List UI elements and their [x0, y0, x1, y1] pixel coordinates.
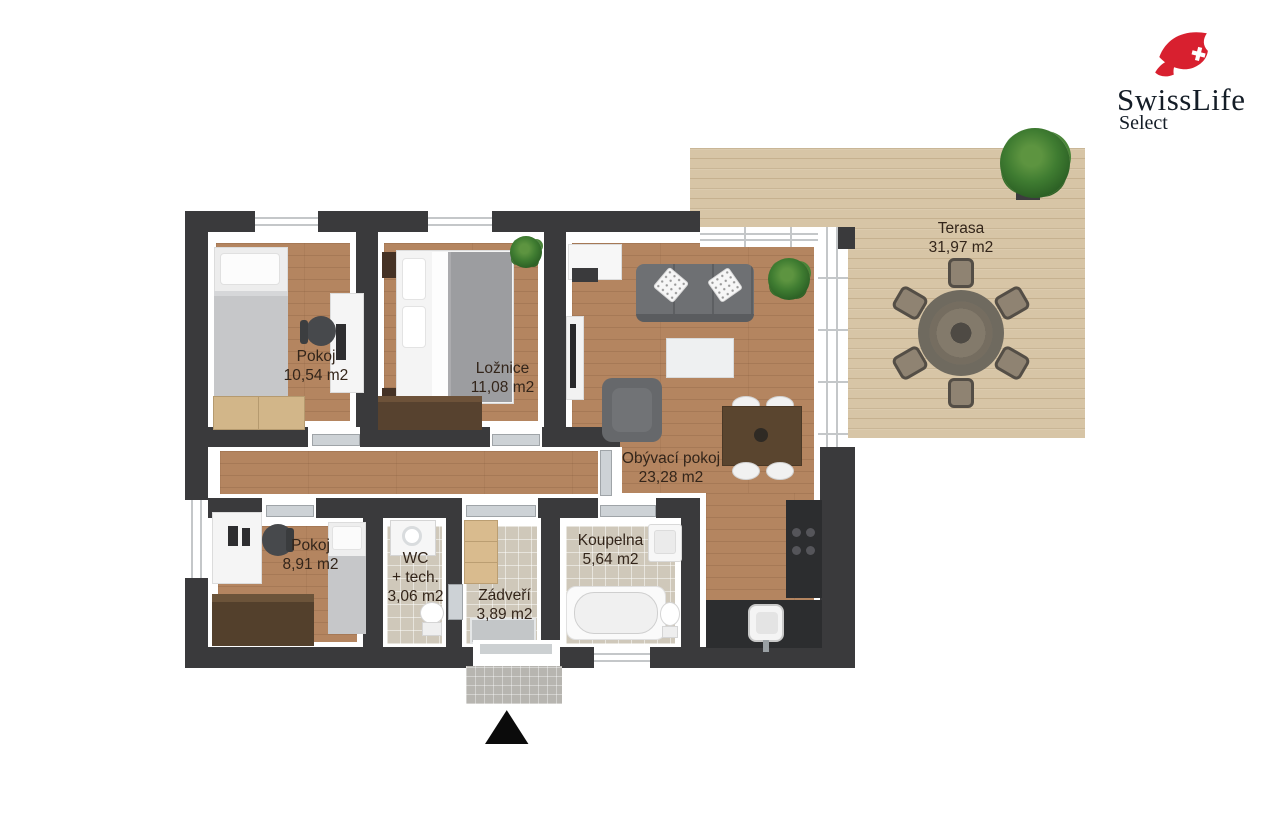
sideboard	[213, 396, 305, 430]
washer-door	[402, 526, 422, 546]
wall-segment	[820, 447, 855, 668]
bed-pillow	[220, 253, 280, 285]
floorplan-canvas: ▲ Pokoj 10,54 m2 Ložnice 11,08 m2 Obývac…	[0, 0, 1280, 835]
window	[255, 211, 318, 232]
wall-segment	[560, 647, 594, 668]
room-label-pokoj1: Pokoj 10,54 m2	[246, 348, 386, 386]
door-leaf	[492, 434, 540, 446]
entrance-direction-icon: ▲	[470, 700, 543, 749]
wall-segment	[492, 211, 700, 232]
room-name: Pokoj	[246, 348, 386, 367]
bed-pillow	[402, 306, 426, 348]
brand-subname: Select	[1119, 112, 1168, 135]
room-name-2: + tech.	[373, 569, 458, 588]
room-area: 3,89 m2	[438, 606, 571, 625]
wall-segment	[316, 498, 462, 518]
sink-basin	[756, 612, 778, 634]
room-area: 8,91 m2	[238, 556, 383, 575]
bed-pillow	[402, 258, 426, 300]
room-area: 10,54 m2	[246, 367, 386, 386]
monitor	[228, 526, 238, 546]
room-name: Zádveří	[438, 587, 571, 606]
terrace-plant	[1000, 128, 1070, 198]
terrace-chair	[948, 258, 974, 288]
terrace-chair	[948, 378, 974, 408]
wall-segment	[185, 211, 208, 500]
room-name: Ložnice	[430, 360, 575, 379]
window	[428, 211, 492, 232]
wall-segment	[208, 427, 308, 447]
room-label-pokoj2: Pokoj 8,91 m2	[238, 537, 383, 575]
room-name: Koupelna	[544, 532, 677, 551]
stove-burner	[806, 546, 815, 555]
entrance-step	[480, 644, 552, 654]
wall-segment	[538, 498, 598, 518]
sofa	[636, 264, 754, 322]
bathtub-inner	[574, 592, 658, 634]
stove-burner	[792, 546, 801, 555]
door-leaf	[266, 505, 314, 517]
armchair-seat	[612, 388, 652, 432]
door-leaf	[466, 505, 536, 517]
room-area: 31,97 m2	[890, 239, 1032, 258]
toilet-bowl	[660, 602, 680, 626]
wall-corner-post	[838, 227, 855, 249]
window	[185, 500, 208, 578]
stove-burner	[806, 528, 815, 537]
floor-corridor	[212, 447, 620, 498]
room-label-loznice: Ložnice 11,08 m2	[430, 360, 575, 398]
window-glazing-right	[818, 227, 848, 447]
terrace-table	[918, 290, 1004, 376]
window	[594, 647, 650, 668]
dining-chair	[766, 462, 794, 480]
room-label-obyvaci: Obývací pokoj 23,28 m2	[585, 450, 757, 488]
wall-segment	[318, 211, 428, 232]
office-chair-back	[300, 320, 308, 344]
office-chair	[306, 316, 336, 346]
toilet-tank	[662, 626, 678, 638]
room-area: 23,28 m2	[585, 469, 757, 488]
room-name: WC	[373, 550, 458, 569]
table-centerpiece	[754, 428, 768, 442]
room-label-terasa: Terasa 31,97 m2	[890, 220, 1032, 258]
door-leaf	[600, 505, 656, 517]
dresser	[212, 594, 314, 646]
swisslife-flag-icon	[1150, 28, 1212, 84]
faucet	[763, 640, 769, 652]
room-name: Pokoj	[238, 537, 383, 556]
room-name: Obývací pokoj	[585, 450, 757, 469]
room-label-zadveri: Zádveří 3,89 m2	[438, 587, 571, 625]
plant	[768, 258, 810, 300]
wall-segment	[185, 647, 473, 668]
coffee-table	[666, 338, 734, 378]
wardrobe	[464, 520, 498, 584]
room-area: 5,64 m2	[544, 551, 677, 570]
room-label-koupelna: Koupelna 5,64 m2	[544, 532, 677, 570]
wall-segment	[681, 498, 700, 648]
plant	[510, 236, 542, 268]
door-leaf	[312, 434, 360, 446]
wall-segment	[360, 427, 490, 447]
room-area: 11,08 m2	[430, 379, 575, 398]
dresser	[378, 396, 482, 430]
stove-burner	[792, 528, 801, 537]
cabinet-detail	[572, 268, 598, 282]
room-name: Terasa	[890, 220, 1032, 239]
